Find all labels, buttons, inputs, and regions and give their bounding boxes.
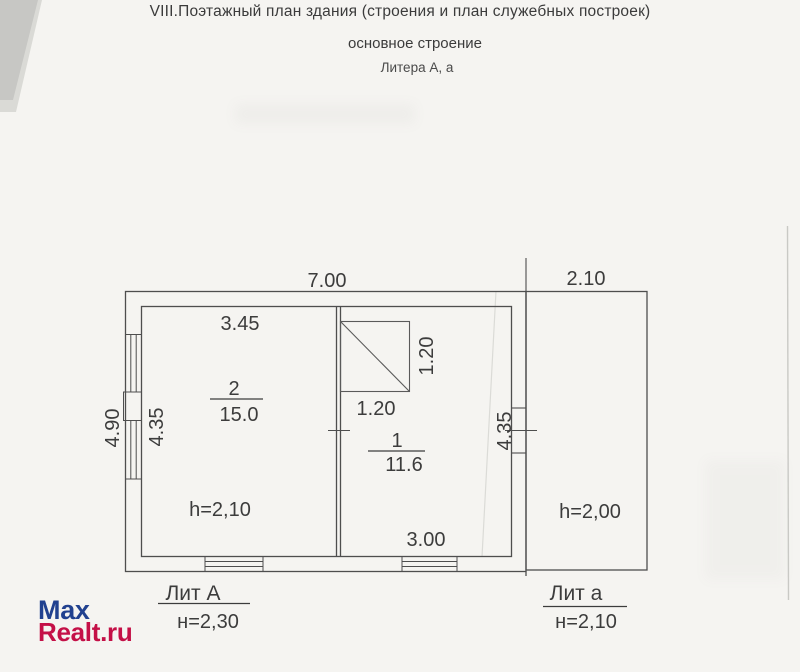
- main-building-outer-wall: [126, 292, 527, 572]
- scanned-floor-plan-page: VIII.Поэтажный план здания (строения и п…: [0, 0, 800, 672]
- wall-pier: [124, 392, 142, 421]
- room1-number: 1: [391, 430, 402, 452]
- room1-area: 11.6: [385, 454, 422, 476]
- dim-top-annex: 2.10: [567, 268, 606, 290]
- window-symbol: [126, 335, 142, 393]
- window-symbol: [402, 557, 457, 572]
- annex-outline: [526, 292, 647, 571]
- left-wall-windows: [124, 335, 142, 480]
- floor-plan-drawing: 7.00 2.10 3.45 4.90 4.35 4.35 1.20 1.20 …: [0, 0, 800, 672]
- lit-a-main-height: н=2,30: [177, 611, 239, 633]
- lit-a-annex-label: Лит а: [550, 582, 603, 605]
- dim-stove-height: 1.20: [416, 337, 438, 376]
- dim-room1-width: 3.00: [407, 529, 446, 551]
- bottom-wall-windows: [205, 557, 457, 572]
- scan-artifacts: [0, 0, 789, 600]
- lit-a-main-label: Лит А: [166, 582, 221, 605]
- dim-inner-height-left: 4.35: [146, 408, 168, 447]
- dim-room2-width: 3.45: [221, 313, 260, 335]
- window-symbol: [205, 557, 263, 572]
- room2-ceiling-height: h=2,10: [189, 499, 251, 521]
- stove-diagonal: [341, 322, 410, 392]
- watermark-realt-ru: Realt.ru: [38, 619, 132, 645]
- dim-outer-height: 4.90: [102, 409, 124, 448]
- window-symbol: [126, 421, 142, 480]
- annex-ceiling-height: h=2,00: [559, 501, 621, 523]
- dim-inner-height-right: 4.35: [494, 412, 516, 451]
- room2-area: 15.0: [220, 404, 259, 426]
- stove-symbol: [341, 322, 410, 392]
- building-walls: [126, 292, 648, 577]
- dim-top-main: 7.00: [308, 270, 347, 292]
- right-page-crease: [788, 226, 789, 600]
- lit-a-annex-height: н=2,10: [555, 611, 617, 633]
- dim-stove-width: 1.20: [357, 398, 396, 420]
- room2-number: 2: [228, 378, 239, 400]
